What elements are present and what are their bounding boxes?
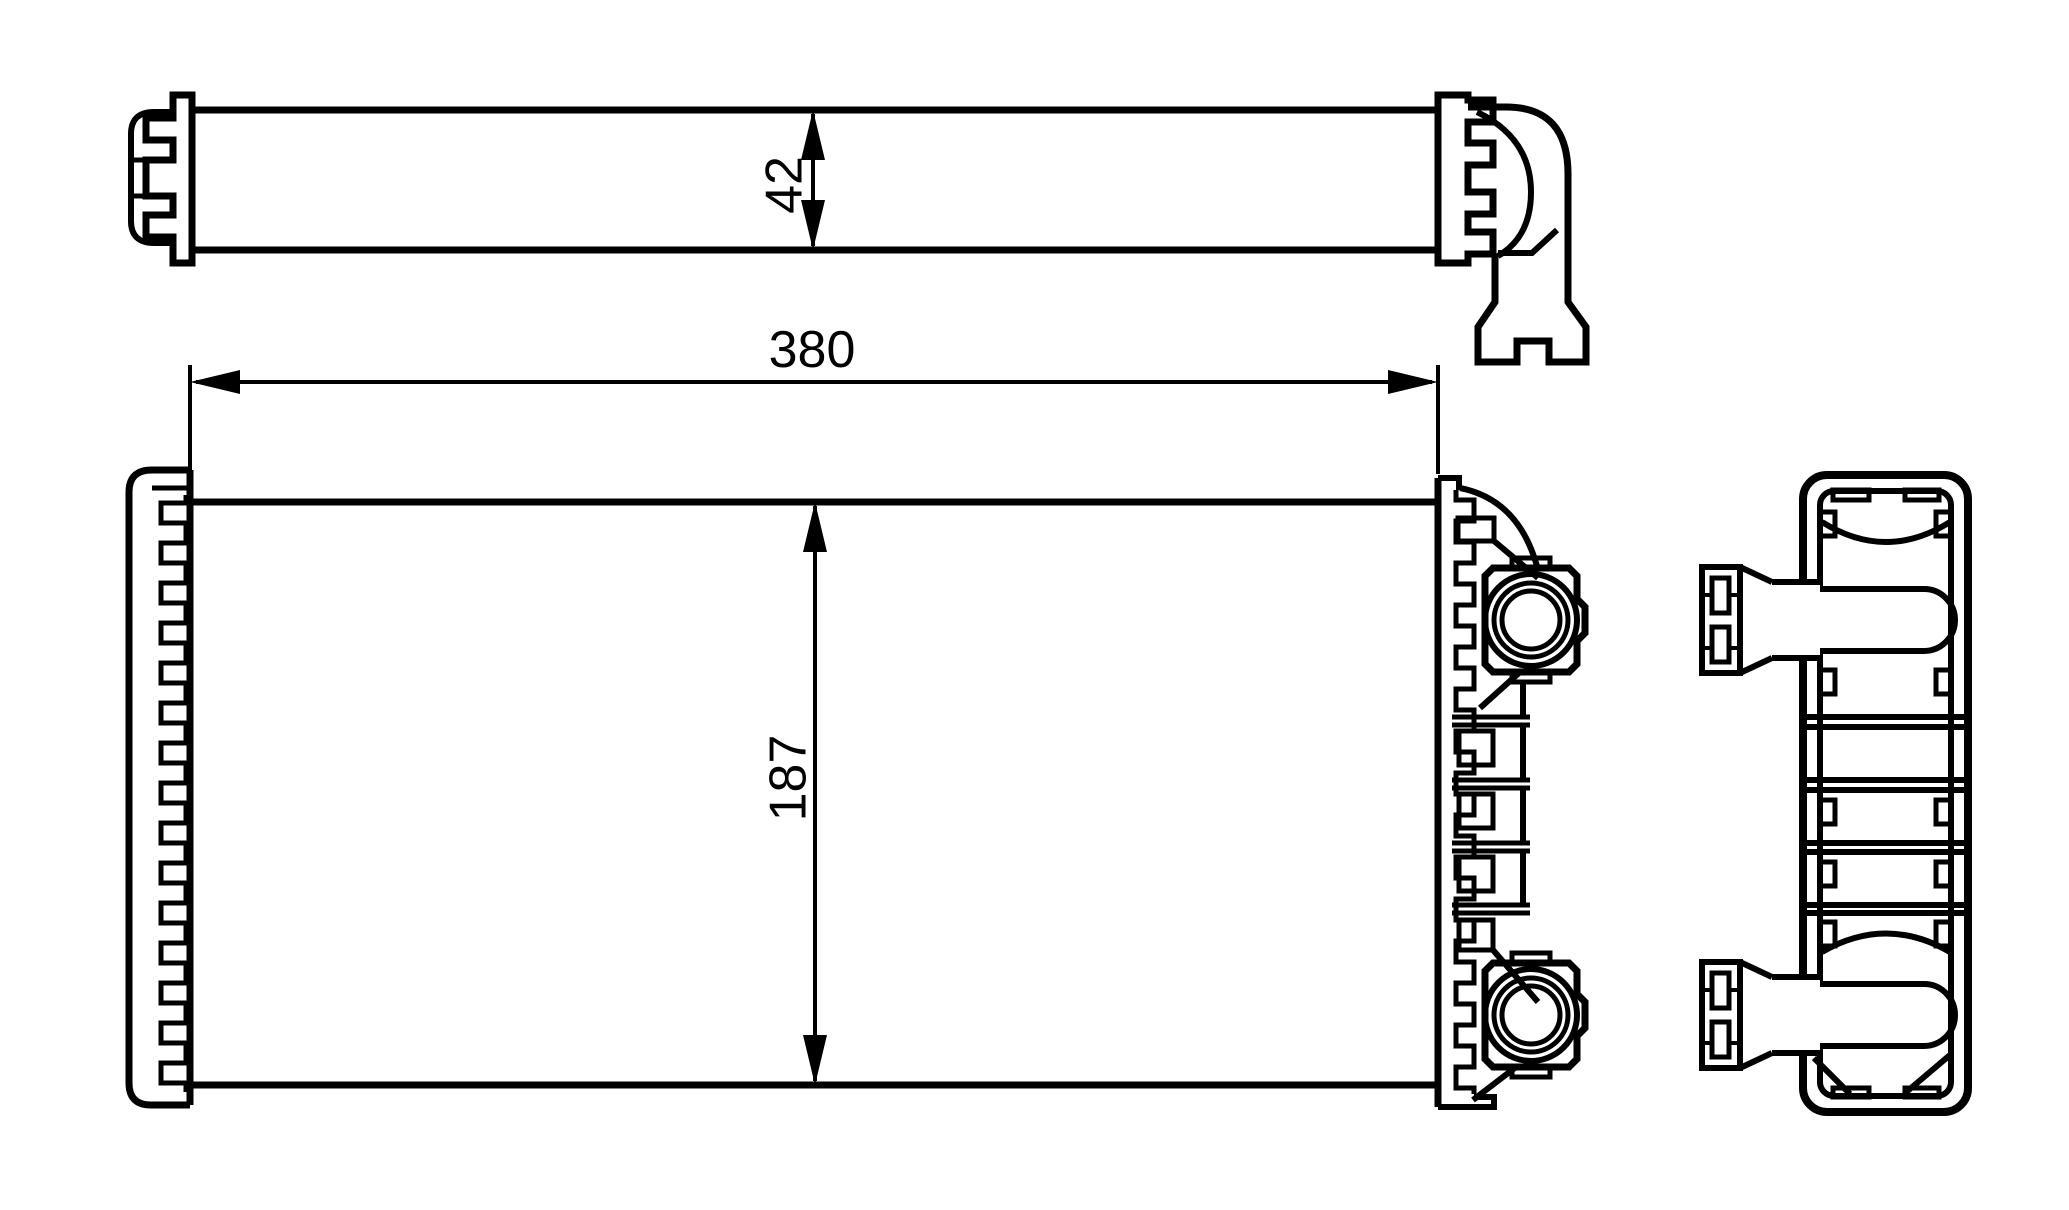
side-tank-outer — [1803, 475, 1968, 1112]
top-right-flange — [1438, 95, 1493, 263]
pipe-finger-bulge — [1820, 589, 1955, 651]
side-clip-a-left — [1820, 670, 1835, 694]
side-top-dome-arc — [1822, 522, 1950, 542]
terminal-upper — [1712, 578, 1729, 613]
port-bottom-middle-ring — [1494, 978, 1568, 1052]
side-clip-a-right — [1936, 670, 1951, 694]
dim-depth-label: 42 — [756, 156, 814, 214]
heater-core-drawing: 42 380 — [0, 0, 2069, 1210]
side-tank-inner — [1820, 491, 1951, 1096]
connector-block — [1702, 567, 1740, 673]
side-upper-pipe — [1702, 567, 1955, 673]
side-clip-d-right — [1936, 922, 1951, 946]
dimension-depth: 42 — [756, 110, 825, 250]
front-view — [129, 470, 1585, 1107]
side-view — [1702, 475, 1968, 1112]
top-left-end-cap — [131, 112, 173, 243]
connector-slants — [1740, 962, 1772, 1068]
port-top-inner-ring — [1502, 591, 1560, 649]
terminal-lines — [1702, 595, 1740, 648]
dimension-width: 380 — [190, 321, 1438, 496]
arrowhead-right-icon — [1388, 370, 1438, 394]
flange-bottom-foot — [1438, 1097, 1494, 1107]
side-clip-c-left — [1820, 862, 1835, 886]
arrowhead-up-icon — [801, 110, 825, 160]
port-bottom-tab-upper — [1512, 953, 1550, 964]
pipe-finger-bulge — [1820, 984, 1955, 1046]
side-clip-c-right — [1936, 862, 1951, 886]
dim-width-label: 380 — [769, 321, 856, 379]
side-bottom-dome-arc — [1822, 934, 1950, 953]
terminal-lower — [1712, 627, 1729, 662]
side-lower-pipe — [1702, 962, 1955, 1068]
technical-drawing-canvas: 42 380 — [0, 0, 2069, 1210]
left-gasket-wave — [161, 495, 186, 1092]
side-clip-b-right — [1936, 800, 1951, 824]
terminal-upper — [1712, 973, 1729, 1008]
connector-slants — [1740, 567, 1772, 673]
bracket-transition-top-diagonal — [1480, 672, 1520, 708]
port-bottom-outer-ring — [1485, 969, 1577, 1061]
top-left-end-plate — [146, 95, 192, 263]
port-top-middle-ring — [1494, 583, 1568, 657]
port-top-outer-ring — [1485, 574, 1577, 666]
dim-height-label: 187 — [760, 735, 818, 822]
dimension-height: 187 — [760, 502, 827, 1085]
side-top-tab-left — [1833, 490, 1869, 500]
pipe-wall-mask — [1768, 980, 1820, 1050]
terminal-lower — [1712, 1022, 1729, 1057]
port-bottom-tab-lower — [1512, 1066, 1550, 1077]
side-clip-d-left — [1820, 922, 1835, 946]
pipe-inner-mask — [1814, 592, 1826, 648]
arrowhead-down-icon — [803, 1035, 827, 1085]
terminal-lines — [1702, 990, 1740, 1043]
side-clip-b-left — [1820, 800, 1835, 824]
pipe-wall-mask — [1768, 585, 1820, 655]
arrowhead-up-icon — [803, 502, 827, 552]
top-view — [131, 95, 1586, 362]
pipe-inner-mask — [1814, 987, 1826, 1043]
side-top-tab-right — [1905, 490, 1939, 500]
connector-block — [1702, 962, 1740, 1068]
arrowhead-left-icon — [190, 370, 240, 394]
